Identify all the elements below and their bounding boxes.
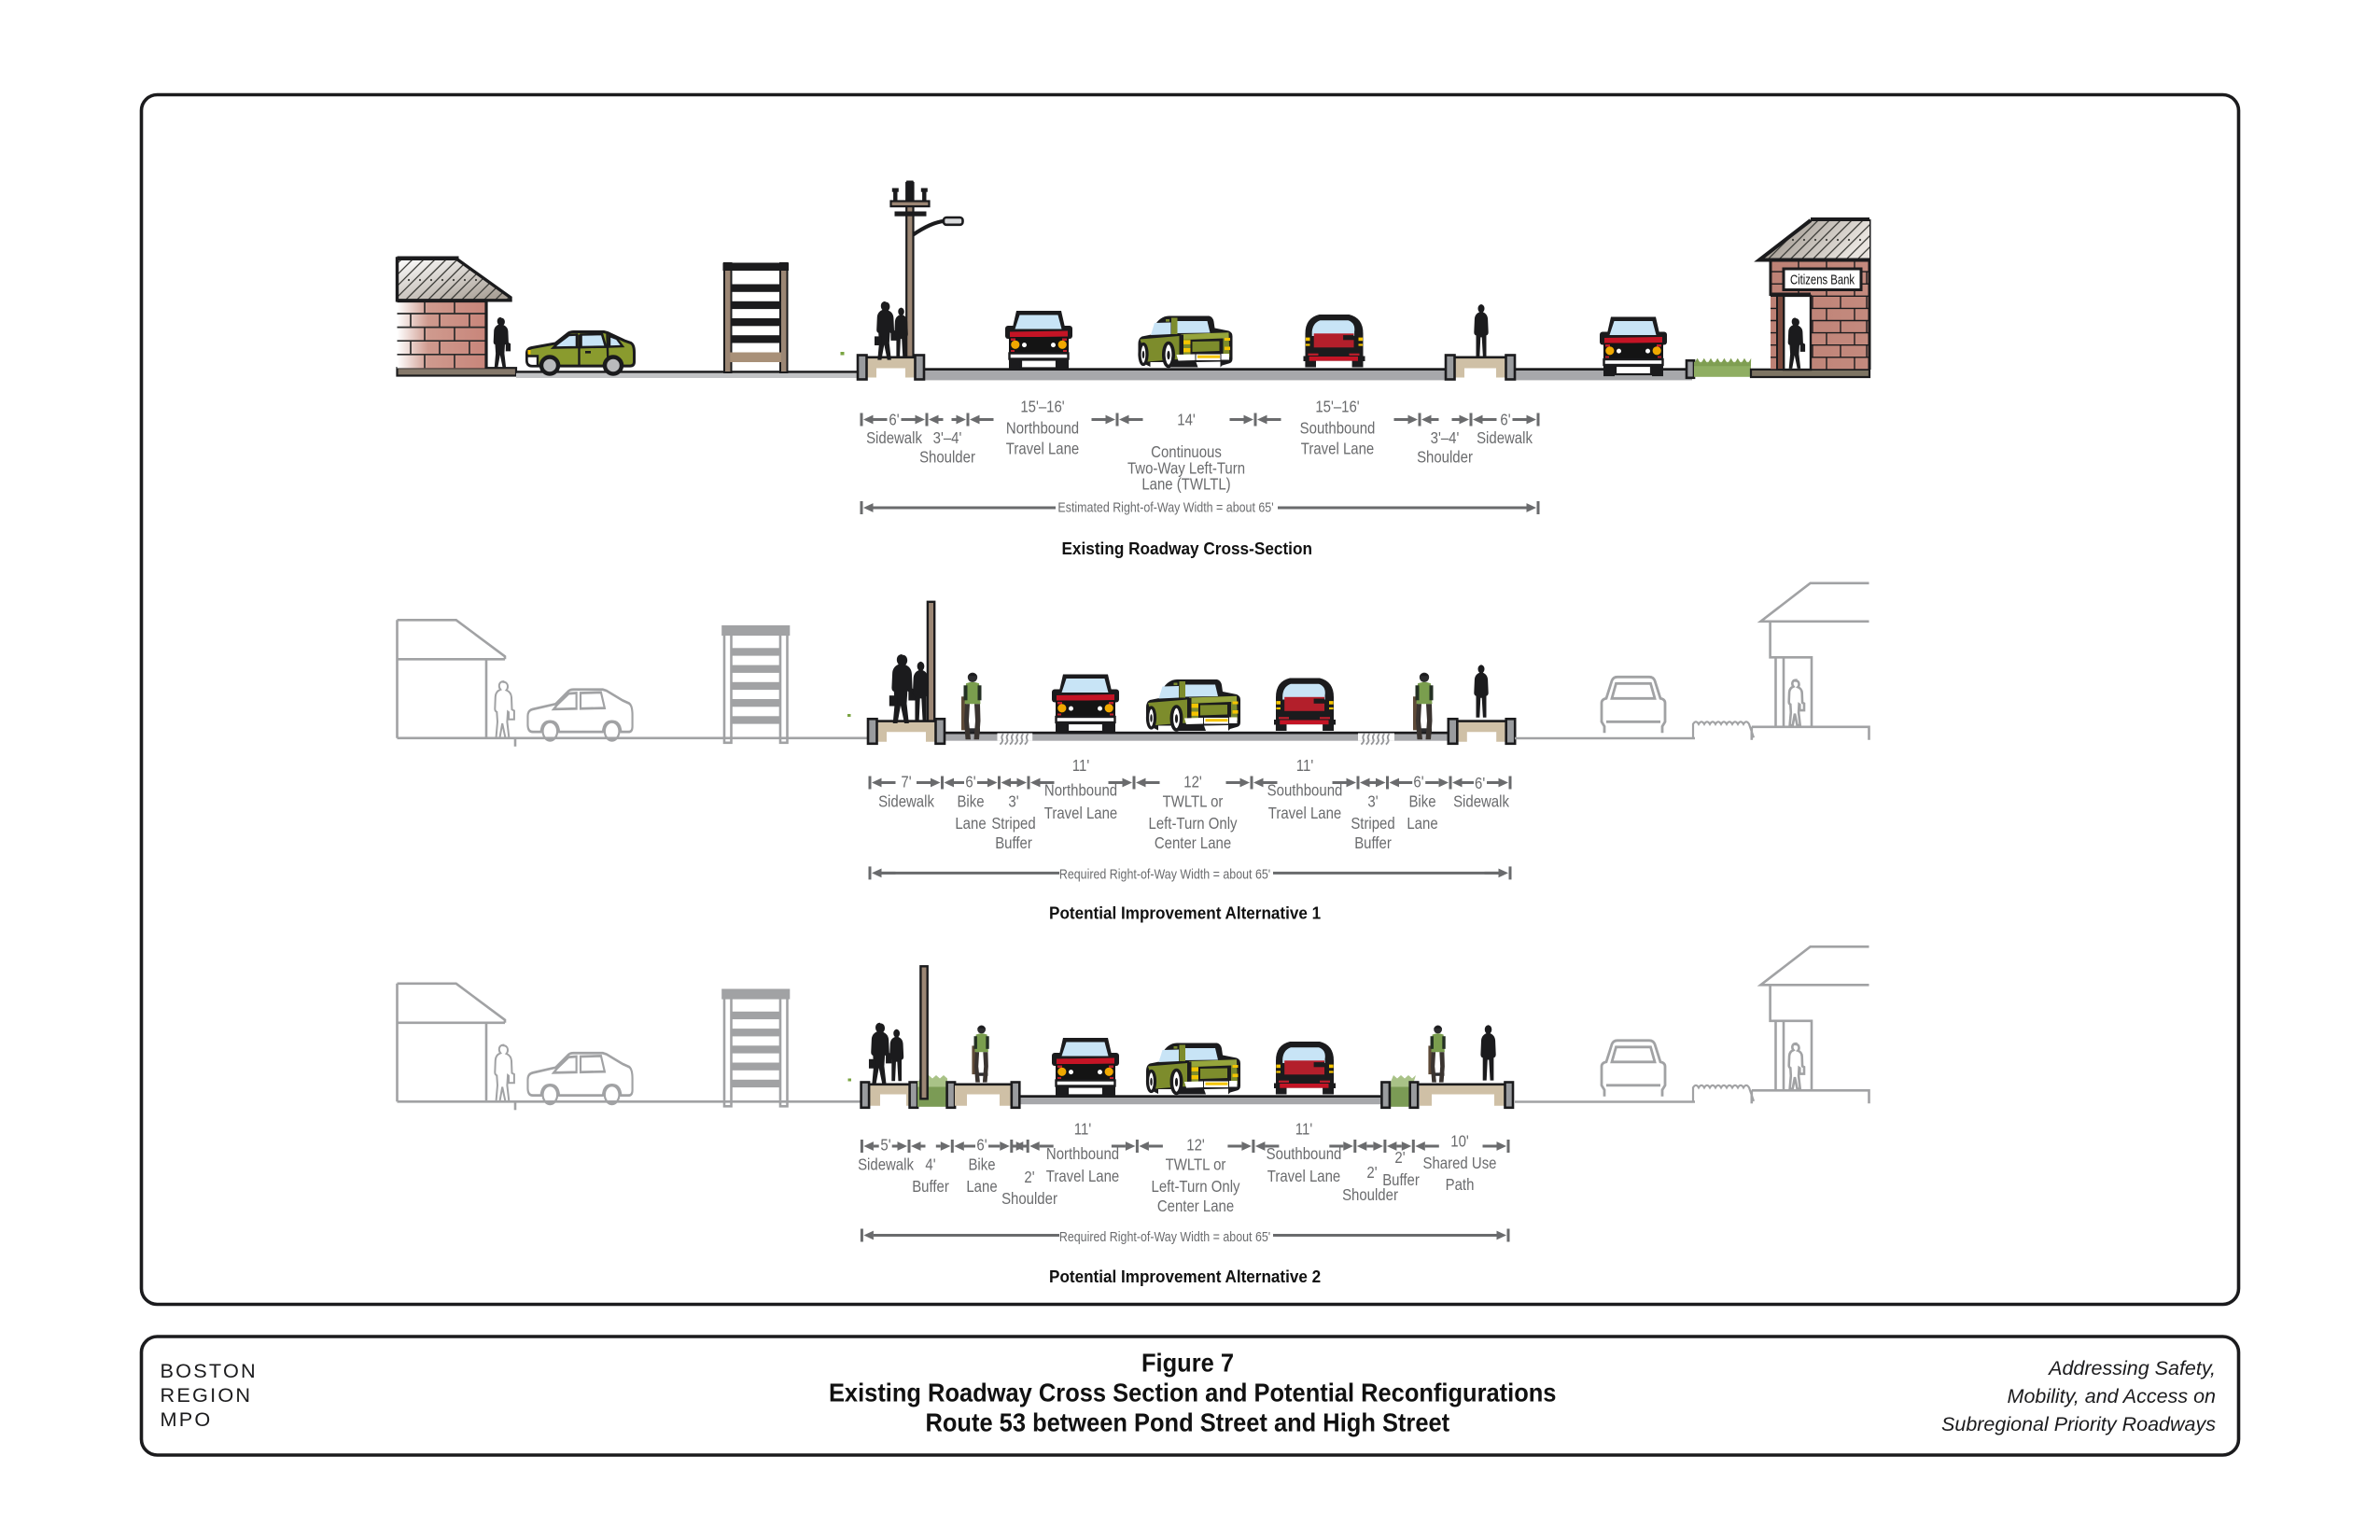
svg-text:BOSTON: BOSTON: [161, 1359, 258, 1382]
svg-text:Buffer: Buffer: [912, 1178, 949, 1196]
svg-text:11': 11': [1295, 1121, 1312, 1139]
svg-text:Continuous: Continuous: [1151, 443, 1222, 461]
svg-text:11': 11': [1074, 1121, 1091, 1139]
svg-text:Shoulder: Shoulder: [1417, 449, 1473, 467]
svg-text:Citizens Bank: Citizens Bank: [1790, 272, 1855, 287]
svg-text:Travel Lane: Travel Lane: [1006, 441, 1079, 458]
svg-text:Sidewalk: Sidewalk: [858, 1156, 915, 1174]
svg-text:Lane: Lane: [1407, 815, 1437, 833]
svg-text:11': 11': [1072, 757, 1089, 775]
svg-text:3'–4': 3'–4': [1431, 429, 1460, 447]
svg-text:Potential Improvement Alternat: Potential Improvement Alternative 2: [1049, 1267, 1321, 1286]
svg-text:Northbound: Northbound: [1046, 1145, 1119, 1163]
svg-text:Route 53 between Pond Street a: Route 53 between Pond Street and High St…: [925, 1407, 1449, 1436]
svg-text:6': 6': [1413, 774, 1423, 791]
svg-text:Shoulder: Shoulder: [919, 449, 975, 467]
svg-text:Existing Roadway Cross Section: Existing Roadway Cross Section and Poten…: [829, 1378, 1557, 1407]
svg-text:Center Lane: Center Lane: [1157, 1197, 1234, 1215]
svg-text:Addressing Safety,: Addressing Safety,: [2047, 1357, 2216, 1379]
svg-text:Left-Turn Only: Left-Turn Only: [1148, 815, 1238, 833]
svg-text:Sidewalk: Sidewalk: [1453, 793, 1510, 811]
svg-text:Center Lane: Center Lane: [1155, 834, 1231, 852]
svg-text:Shared Use: Shared Use: [1423, 1155, 1497, 1172]
svg-text:6': 6': [965, 774, 975, 791]
svg-text:4': 4': [925, 1156, 935, 1174]
svg-text:2': 2': [1394, 1149, 1405, 1167]
svg-text:15'–16': 15'–16': [1020, 399, 1064, 416]
svg-text:Lane (TWLTL): Lane (TWLTL): [1141, 476, 1230, 494]
svg-text:3': 3': [1008, 793, 1018, 811]
svg-text:TWLTL or: TWLTL or: [1166, 1156, 1226, 1174]
svg-text:Bike: Bike: [957, 793, 984, 811]
svg-text:Bike: Bike: [1408, 793, 1435, 811]
svg-text:Path: Path: [1446, 1176, 1475, 1194]
svg-text:2': 2': [1366, 1164, 1377, 1182]
svg-text:Travel Lane: Travel Lane: [1268, 805, 1341, 822]
svg-text:Buffer: Buffer: [1382, 1171, 1420, 1189]
svg-text:Subregional Priority Roadways: Subregional Priority Roadways: [1941, 1413, 2216, 1435]
svg-text:Mobility, and Access on: Mobility, and Access on: [2008, 1385, 2216, 1407]
svg-text:Northbound: Northbound: [1044, 782, 1117, 800]
svg-text:Striped: Striped: [1351, 815, 1394, 833]
svg-text:7': 7': [901, 774, 911, 791]
svg-text:Southbound: Southbound: [1267, 1145, 1342, 1163]
svg-text:Sidewalk: Sidewalk: [866, 429, 923, 447]
svg-text:Potential Improvement Alternat: Potential Improvement Alternative 1: [1049, 903, 1321, 923]
svg-text:Sidewalk: Sidewalk: [878, 793, 935, 811]
svg-text:TWLTL or: TWLTL or: [1163, 793, 1224, 811]
svg-text:Travel Lane: Travel Lane: [1044, 805, 1117, 822]
svg-text:11': 11': [1296, 757, 1313, 775]
svg-text:2': 2': [1024, 1169, 1034, 1186]
svg-text:Lane: Lane: [955, 815, 986, 833]
svg-text:6': 6': [889, 412, 899, 429]
svg-text:MPO: MPO: [161, 1407, 213, 1431]
svg-text:3': 3': [1367, 793, 1378, 811]
svg-text:6': 6': [1500, 412, 1510, 429]
svg-text:3'–4': 3'–4': [933, 429, 962, 447]
svg-text:Travel Lane: Travel Lane: [1046, 1168, 1119, 1185]
svg-text:REGION: REGION: [161, 1383, 253, 1407]
svg-text:Buffer: Buffer: [1354, 834, 1392, 852]
svg-text:Shoulder: Shoulder: [1001, 1190, 1057, 1208]
svg-text:Lane: Lane: [966, 1178, 997, 1196]
svg-text:Figure 7: Figure 7: [1141, 1348, 1234, 1377]
svg-text:Estimated Right-of-Way Width =: Estimated Right-of-Way Width = about 65': [1057, 498, 1273, 514]
svg-text:Required Right-of-Way Width =: Required Right-of-Way Width = about 65': [1059, 1228, 1270, 1244]
svg-text:Sidewalk: Sidewalk: [1477, 429, 1533, 447]
svg-text:Travel Lane: Travel Lane: [1301, 441, 1374, 458]
svg-text:Required Right-of-Way Width =: Required Right-of-Way Width = about 65': [1059, 865, 1270, 881]
svg-text:6': 6': [976, 1137, 987, 1155]
svg-text:15'–16': 15'–16': [1315, 399, 1359, 416]
svg-text:10': 10': [1450, 1133, 1468, 1151]
svg-text:Buffer: Buffer: [995, 834, 1032, 852]
svg-text:Bike: Bike: [968, 1156, 995, 1174]
svg-text:12': 12': [1183, 774, 1201, 791]
svg-text:Travel Lane: Travel Lane: [1267, 1168, 1340, 1185]
svg-text:Southbound: Southbound: [1300, 420, 1376, 438]
svg-text:Striped: Striped: [991, 815, 1035, 833]
svg-text:6': 6': [1475, 775, 1485, 792]
svg-text:Existing Roadway Cross-Section: Existing Roadway Cross-Section: [1061, 539, 1312, 558]
svg-text:Northbound: Northbound: [1006, 420, 1079, 438]
svg-text:Left-Turn Only: Left-Turn Only: [1151, 1178, 1240, 1196]
svg-text:14': 14': [1177, 412, 1195, 429]
svg-text:12': 12': [1186, 1137, 1204, 1155]
svg-text:5': 5': [880, 1137, 890, 1155]
svg-text:Southbound: Southbound: [1267, 782, 1343, 800]
